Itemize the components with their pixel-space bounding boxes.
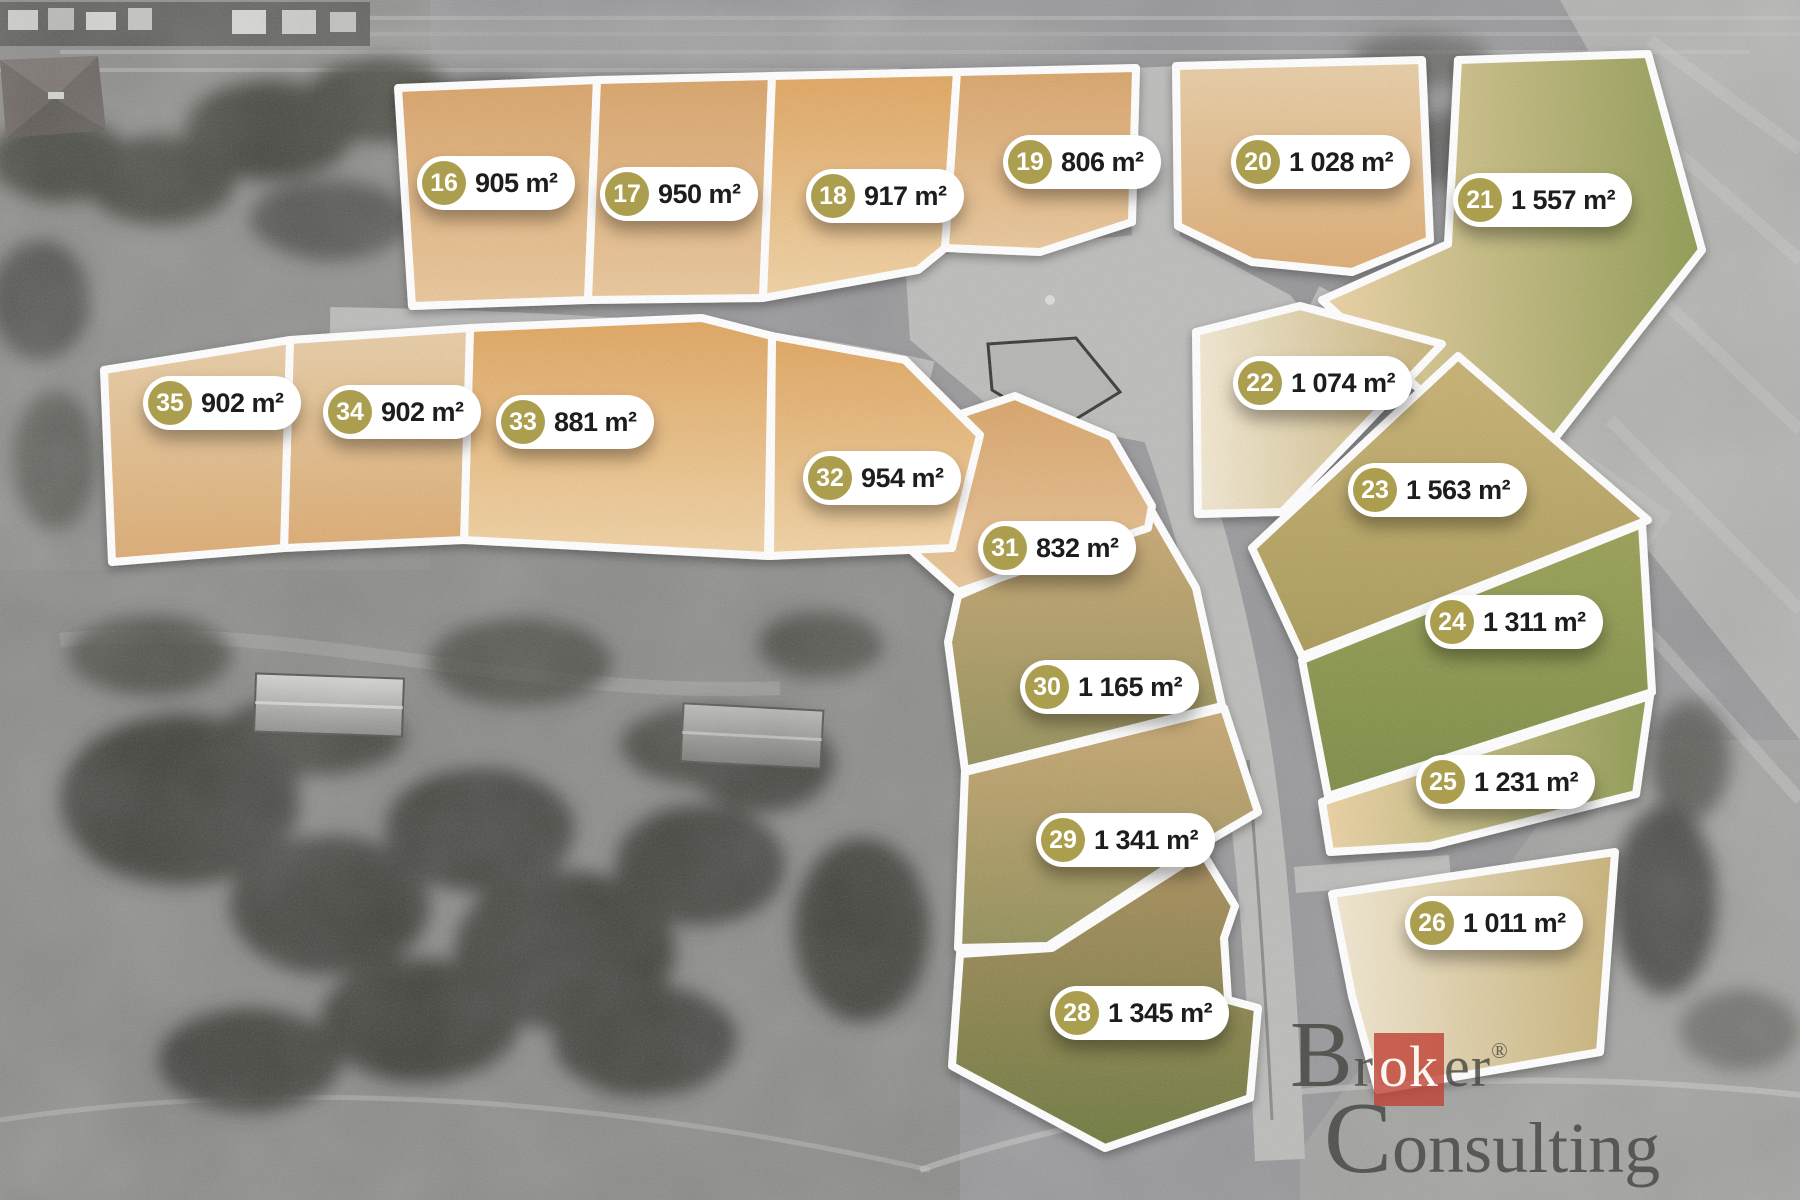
broker-consulting-watermark: Broker® Consulting [1290,1008,1660,1190]
watermark-line2-rest: onsulting [1392,1108,1660,1188]
registered-trademark-icon: ® [1491,1038,1509,1063]
aerial-plot-map: 16905 m²17950 m²18917 m²19806 m²201 028 … [0,0,1800,1200]
watermark-letter-c: C [1324,1082,1392,1195]
watermark-line2: Consulting [1324,1088,1660,1190]
